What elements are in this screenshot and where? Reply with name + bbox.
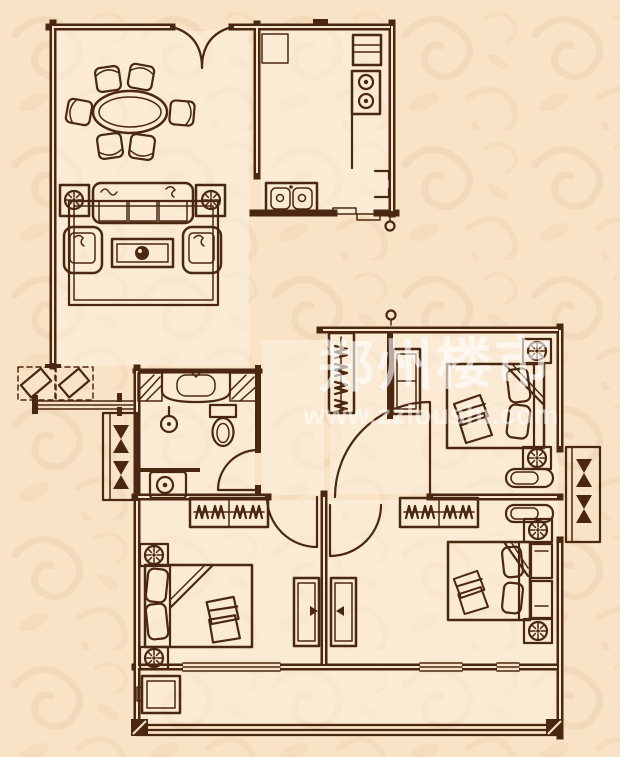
lamp-icon <box>528 449 546 467</box>
floorplan-drawing <box>0 0 620 757</box>
window-south-small <box>497 661 519 673</box>
floorplan-image: 郑州楼市 www.zzloushi.com <box>0 0 620 757</box>
window-south-right <box>420 661 462 673</box>
lamp-icon <box>145 649 163 667</box>
lamp-icon <box>65 191 83 209</box>
lamp-icon <box>145 546 163 564</box>
lamp-icon <box>202 191 220 209</box>
lamp-icon <box>528 342 546 360</box>
lamp-icon <box>529 521 547 539</box>
window-south-left <box>183 661 280 673</box>
lamp-icon <box>529 622 547 640</box>
chimney-notch <box>313 19 328 27</box>
